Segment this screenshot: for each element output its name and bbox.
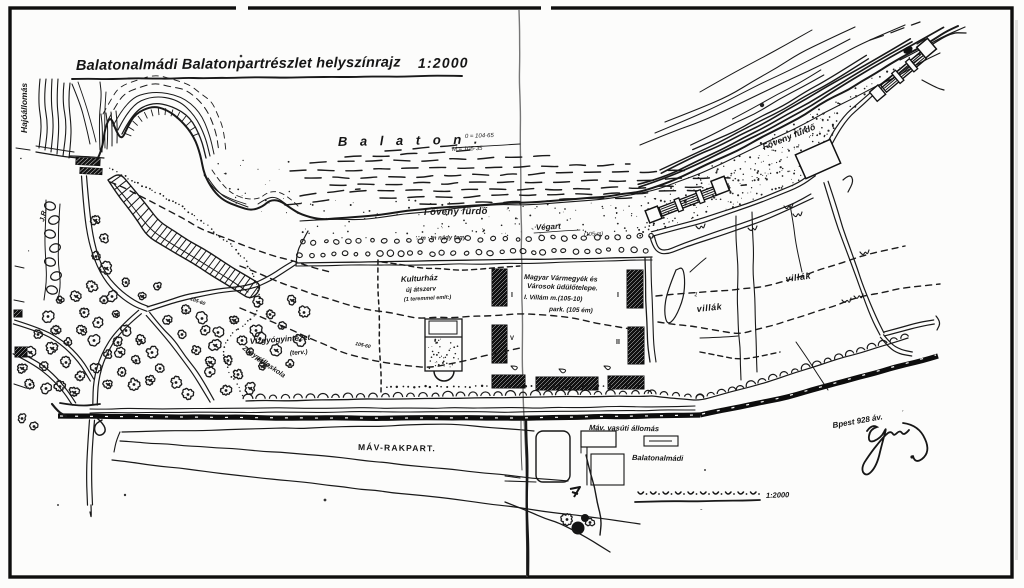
svg-text:II: II <box>616 339 620 346</box>
svg-text:I. Villám m.(105-10): I. Villám m.(105-10) <box>524 294 583 303</box>
svg-text:(terv.): (terv.) <box>290 349 308 357</box>
svg-text:105-60: 105-60 <box>189 296 206 307</box>
svg-text:1:2000: 1:2000 <box>418 54 469 71</box>
svg-text:ˇ: ˇ <box>700 510 703 516</box>
svg-text:Kulturház: Kulturház <box>401 273 438 284</box>
svg-text:(1 teremmel emlt:): (1 teremmel emlt:) <box>404 295 452 303</box>
svg-text:Föveny fürdő: Föveny fürdő <box>761 121 817 152</box>
svg-text:105-60: 105-60 <box>355 341 372 350</box>
svg-text:▪: ▪ <box>28 248 30 253</box>
svg-text:0 = 104·65: 0 = 104·65 <box>465 133 495 140</box>
svg-text:Máv. vasúti állomás: Máv. vasúti állomás <box>589 423 659 433</box>
svg-text:Városok üdülőtelepe.: Városok üdülőtelepe. <box>527 283 598 292</box>
svg-text:ˊ: ˊ <box>901 411 904 418</box>
svg-text:park. (105 ém): park. (105 ém) <box>548 306 593 315</box>
svg-text:villák: villák <box>696 301 723 314</box>
svg-text:Föveny fürdő: Föveny fürdő <box>424 206 489 218</box>
svg-text:Hajóállomás: Hajóállomás <box>19 83 29 133</box>
svg-text:▪: ▪ <box>20 156 22 162</box>
svg-text:V: V <box>510 336 514 342</box>
svg-text:Magyar Vármegyék és: Magyar Vármegyék és <box>524 274 598 284</box>
svg-text:J.R.: J.R. <box>39 208 49 222</box>
svg-text:Balatonalmádi: Balatonalmádi <box>632 453 684 463</box>
svg-text:új átszerv: új átszerv <box>406 285 437 294</box>
svg-text:I: I <box>617 292 619 299</box>
svg-text:I: I <box>511 292 513 299</box>
svg-text:Balatonalmádi Balatonpartrészl: Balatonalmádi Balatonpartrészlet helyszí… <box>76 55 402 74</box>
svg-text:MÁV-RAKPART.: MÁV-RAKPART. <box>358 442 436 453</box>
svg-text:Végart: Végart <box>536 222 562 232</box>
svg-text:1:2000: 1:2000 <box>766 490 790 500</box>
